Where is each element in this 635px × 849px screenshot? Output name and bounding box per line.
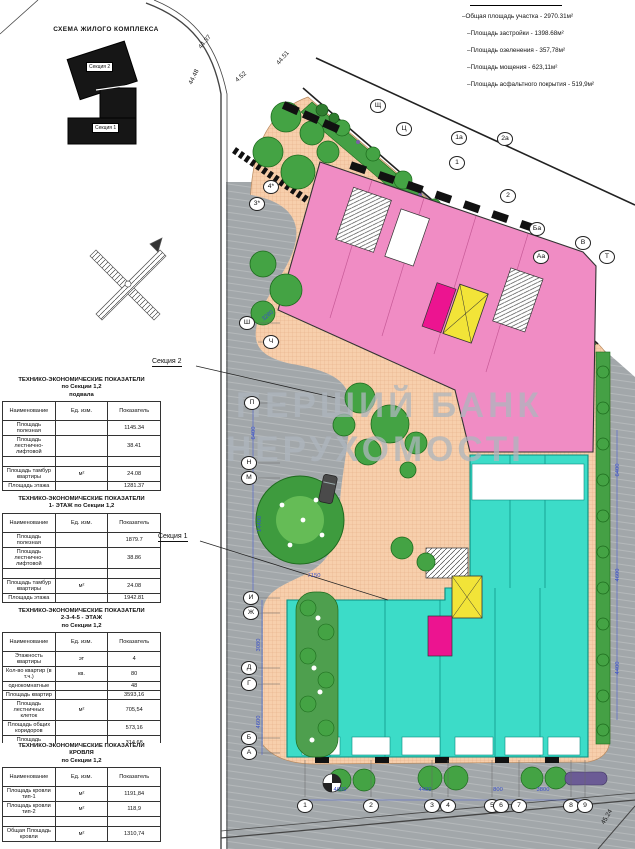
tep-cell: Площадь тамбур квартиры bbox=[3, 467, 56, 482]
tep-cell: однокомнатные bbox=[3, 682, 56, 691]
tep-cell bbox=[3, 817, 56, 827]
tep-cell: Площадь полезная bbox=[3, 532, 56, 547]
tep-row: Площадь лестничных клетокм²705,54 bbox=[3, 700, 161, 721]
axis-bubble: 3 bbox=[424, 799, 440, 813]
tep-cell: 1942.81 bbox=[108, 593, 161, 602]
tep-cell bbox=[55, 532, 108, 547]
section2-label: Секция 2 bbox=[152, 358, 182, 367]
axis-bubble: Д bbox=[241, 661, 257, 675]
tep-col-header: Наименование bbox=[3, 633, 56, 652]
axis-bubble: 2 bbox=[500, 189, 516, 203]
tep-row bbox=[3, 817, 161, 827]
tep-cell bbox=[55, 568, 108, 578]
legend-rule bbox=[470, 5, 562, 6]
dimension-label: 4600 bbox=[334, 787, 347, 793]
legend-item: –Площадь мощения - 623,11м² bbox=[462, 59, 634, 76]
dimension-label: 6400 bbox=[251, 427, 257, 440]
dimension-label: 800 bbox=[493, 787, 503, 793]
scheme-section2-tag: Секция 2 bbox=[86, 62, 113, 72]
axis-bubble: 7 bbox=[511, 799, 527, 813]
tep-cell: 3593,16 bbox=[108, 691, 161, 700]
tep-col-header: Ед. изм. bbox=[55, 768, 108, 787]
axis-bubble: Щ bbox=[370, 99, 386, 113]
tep-cell bbox=[55, 547, 108, 568]
dimension-label: 3080 bbox=[256, 639, 262, 652]
tep-col-header: Наименование bbox=[3, 513, 56, 532]
tep-cell: 48 bbox=[108, 682, 161, 691]
axis-bubble: Т bbox=[599, 250, 615, 264]
tep-row: Площадь тамбур квартирым²24.08 bbox=[3, 578, 161, 593]
axis-bubble: 1а bbox=[451, 131, 467, 145]
axis-bubble: Ц bbox=[396, 122, 412, 136]
watermark-line2: НЕРУХОМОСТІ bbox=[226, 428, 543, 472]
tep-row: Площадь этажа1281.37 bbox=[3, 482, 161, 491]
tep-col-header: Ед. изм. bbox=[55, 513, 108, 532]
tep-cell bbox=[55, 817, 108, 827]
tep-cell: м² bbox=[55, 578, 108, 593]
dimension-label: 6400 bbox=[615, 464, 621, 477]
dimension-label: 4400 bbox=[419, 787, 432, 793]
tep-cell: 1310,74 bbox=[108, 827, 161, 842]
tep-col-header: Наименование bbox=[3, 768, 56, 787]
dimension-label: 4600 bbox=[615, 569, 621, 582]
tep-cell: Площадь полезная bbox=[3, 421, 56, 436]
tep-table-title: ТЕХНИКО-ЭКОНОМИЧЕСКИЕ ПОКАЗАТЕЛИ2-3-4-5 … bbox=[2, 608, 161, 630]
section1-label: Секция 1 bbox=[158, 533, 188, 542]
tep-table: ТЕХНИКО-ЭКОНОМИЧЕСКИЕ ПОКАЗАТЕЛИпо Секци… bbox=[2, 377, 161, 491]
tep-row: Этажность квартирыэт4 bbox=[3, 652, 161, 667]
tep-cell: Этажность квартиры bbox=[3, 652, 56, 667]
tep-col-header: Наименование bbox=[3, 402, 56, 421]
axis-bubble: П bbox=[244, 396, 260, 410]
tep-cell: Площадь кровли тип-1 bbox=[3, 787, 56, 802]
tep-cell: 38.86 bbox=[108, 547, 161, 568]
magenta-core bbox=[428, 616, 452, 656]
scheme-section1-tag: Секция 1 bbox=[92, 123, 119, 133]
tep-cell: м² bbox=[55, 827, 108, 842]
tep-cell: Площадь тамбур квартиры bbox=[3, 578, 56, 593]
tep-cell bbox=[55, 436, 108, 457]
dimension-label: 3800 bbox=[537, 787, 550, 793]
dimension-label: 4400 bbox=[615, 662, 621, 675]
right-green-strip bbox=[596, 352, 610, 744]
axis-bubble: 1 bbox=[449, 156, 465, 170]
scheme-title: СХЕМА ЖИЛОГО КОМПЛЕКСА bbox=[28, 26, 184, 33]
tep-cell: м² bbox=[55, 467, 108, 482]
axis-bubble: 6 bbox=[493, 799, 509, 813]
tep-cell: м² bbox=[55, 700, 108, 721]
axis-bubble: 3* bbox=[249, 197, 265, 211]
axis-bubble: Ба bbox=[529, 222, 545, 236]
tep-table-title: ТЕХНИКО-ЭКОНОМИЧЕСКИЕ ПОКАЗАТЕЛИ1- ЭТАЖ … bbox=[2, 496, 161, 511]
tep-cell: м² bbox=[55, 802, 108, 817]
tep-row: Площадь кровли тип-1м²1191,84 bbox=[3, 787, 161, 802]
tep-row: Площадь полезная1145.34 bbox=[3, 421, 161, 436]
tep-row bbox=[3, 457, 161, 467]
tep-cell bbox=[55, 457, 108, 467]
axis-bubble: Аа bbox=[533, 250, 549, 264]
tep-row: Площадь этажа1942.81 bbox=[3, 593, 161, 602]
tep-cell bbox=[55, 682, 108, 691]
tep-cell: 1145.34 bbox=[108, 421, 161, 436]
axis-bubble: 4 bbox=[440, 799, 456, 813]
tep-cell: 1281.37 bbox=[108, 482, 161, 491]
legend-item: –Общая площадь участка - 2970.31м² bbox=[462, 8, 634, 25]
axis-bubble: Ч bbox=[263, 335, 279, 349]
tep-row: Площадь лестнично-лифтовой38.41 bbox=[3, 436, 161, 457]
tep-cell bbox=[55, 721, 108, 736]
watermark-line1: ПЕРШИЙ БАНК bbox=[236, 384, 543, 428]
tep-cell: Площадь лестнично-лифтовой bbox=[3, 436, 56, 457]
axis-bubble: Н bbox=[241, 456, 257, 470]
tep-cell: Площадь этажа bbox=[3, 593, 56, 602]
tep-row: однокомнатные48 bbox=[3, 682, 161, 691]
area-legend: –Общая площадь участка - 2970.31м²–Площа… bbox=[462, 8, 634, 93]
tep-cell: 24.08 bbox=[108, 467, 161, 482]
tep-row: Кол-во квартир (в т.ч.)кв.80 bbox=[3, 667, 161, 682]
tep-row: Площадь кровли тип-2м²118,9 bbox=[3, 802, 161, 817]
axis-bubble: Ш bbox=[239, 316, 255, 330]
tep-table-title: ТЕХНИКО-ЭКОНОМИЧЕСКИЕ ПОКАЗАТЕЛИпо Секци… bbox=[2, 377, 161, 399]
axis-bubble: 2а bbox=[497, 132, 513, 146]
tep-cell bbox=[108, 817, 161, 827]
tep-cell: Площадь лестничных клеток bbox=[3, 700, 56, 721]
axis-bubble: Б bbox=[241, 731, 257, 745]
tep-cell: Площадь квартир bbox=[3, 691, 56, 700]
tep-cell bbox=[3, 568, 56, 578]
tep-cell bbox=[55, 482, 108, 491]
wind-rose bbox=[90, 238, 166, 320]
axis-bubble: 4* bbox=[263, 180, 279, 194]
axis-bubble: 1 bbox=[297, 799, 313, 813]
legend-item: –Площадь озеленения - 357,78м² bbox=[462, 42, 634, 59]
tep-table: ТЕХНИКО-ЭКОНОМИЧЕСКИЕ ПОКАЗАТЕЛИ1- ЭТАЖ … bbox=[2, 496, 161, 603]
tep-cell bbox=[108, 457, 161, 467]
flower-strip bbox=[296, 592, 338, 757]
tep-cell: 4 bbox=[108, 652, 161, 667]
legend-item: –Площадь асфальтного покрытия - 519,9м² bbox=[462, 76, 634, 93]
tep-cell: 38.41 bbox=[108, 436, 161, 457]
tep-table: ТЕХНИКО-ЭКОНОМИЧЕСКИЕ ПОКАЗАТЕЛИКРОВЛЯпо… bbox=[2, 743, 161, 842]
axis-bubble: 9 bbox=[577, 799, 593, 813]
tep-cell: Площадь кровли тип-2 bbox=[3, 802, 56, 817]
tep-cell bbox=[55, 421, 108, 436]
tep-cell: эт bbox=[55, 652, 108, 667]
tep-col-header: Показатель bbox=[108, 402, 161, 421]
tep-row bbox=[3, 568, 161, 578]
tep-cell bbox=[55, 593, 108, 602]
tep-col-header: Ед. изм. bbox=[55, 402, 108, 421]
tep-cell: 24.08 bbox=[108, 578, 161, 593]
dimension-label: 4600 bbox=[256, 716, 262, 729]
tep-col-header: Показатель bbox=[108, 633, 161, 652]
tep-row: Площадь тамбур квартирым²24.08 bbox=[3, 467, 161, 482]
tep-row: Площадь полезная1879.7 bbox=[3, 532, 161, 547]
axis-bubble: 2 bbox=[363, 799, 379, 813]
tep-cell bbox=[3, 457, 56, 467]
tep-cell: Кол-во квартир (в т.ч.) bbox=[3, 667, 56, 682]
tep-row: Площадь лестнично-лифтовой38.86 bbox=[3, 547, 161, 568]
dimension-label: 14400 bbox=[257, 516, 263, 532]
tep-cell: 705,54 bbox=[108, 700, 161, 721]
tep-cell: кв. bbox=[55, 667, 108, 682]
tep-cell: 1191,84 bbox=[108, 787, 161, 802]
tep-cell: 1879.7 bbox=[108, 532, 161, 547]
tep-cell: 118,9 bbox=[108, 802, 161, 817]
tep-cell: Площадь общих коридоров bbox=[3, 721, 56, 736]
site-plan-sheet: СХЕМА ЖИЛОГО КОМПЛЕКСА Секция 2 Секция 1… bbox=[0, 0, 635, 849]
tep-cell: Общая Площадь кровли bbox=[3, 827, 56, 842]
tep-row: Общая Площадь кровлим²1310,74 bbox=[3, 827, 161, 842]
axis-bubble: М bbox=[241, 471, 257, 485]
tep-cell: Площадь лестнично-лифтовой bbox=[3, 547, 56, 568]
tep-cell bbox=[55, 691, 108, 700]
legend-item: –Площадь застройки - 1398.68м² bbox=[462, 25, 634, 42]
tep-row: Площадь общих коридоров573,16 bbox=[3, 721, 161, 736]
tep-col-header: Показатель bbox=[108, 768, 161, 787]
tep-col-header: Ед. изм. bbox=[55, 633, 108, 652]
tep-col-header: Показатель bbox=[108, 513, 161, 532]
tep-row: Площадь квартир3593,16 bbox=[3, 691, 161, 700]
tep-cell: 573,16 bbox=[108, 721, 161, 736]
tep-table-title: ТЕХНИКО-ЭКОНОМИЧЕСКИЕ ПОКАЗАТЕЛИКРОВЛЯпо… bbox=[2, 743, 161, 765]
axis-bubble: А bbox=[241, 746, 257, 760]
axis-bubble: В bbox=[575, 236, 591, 250]
tep-cell bbox=[108, 568, 161, 578]
axis-bubble: Ж bbox=[243, 606, 259, 620]
dimension-label: 7150 bbox=[308, 573, 321, 579]
axis-bubble: И bbox=[243, 591, 259, 605]
watermark: ПЕРШИЙ БАНК НЕРУХОМОСТІ bbox=[236, 384, 543, 472]
axis-bubble: Г bbox=[241, 677, 257, 691]
tep-cell: 80 bbox=[108, 667, 161, 682]
tep-cell: Площадь этажа bbox=[3, 482, 56, 491]
tep-cell: м² bbox=[55, 787, 108, 802]
